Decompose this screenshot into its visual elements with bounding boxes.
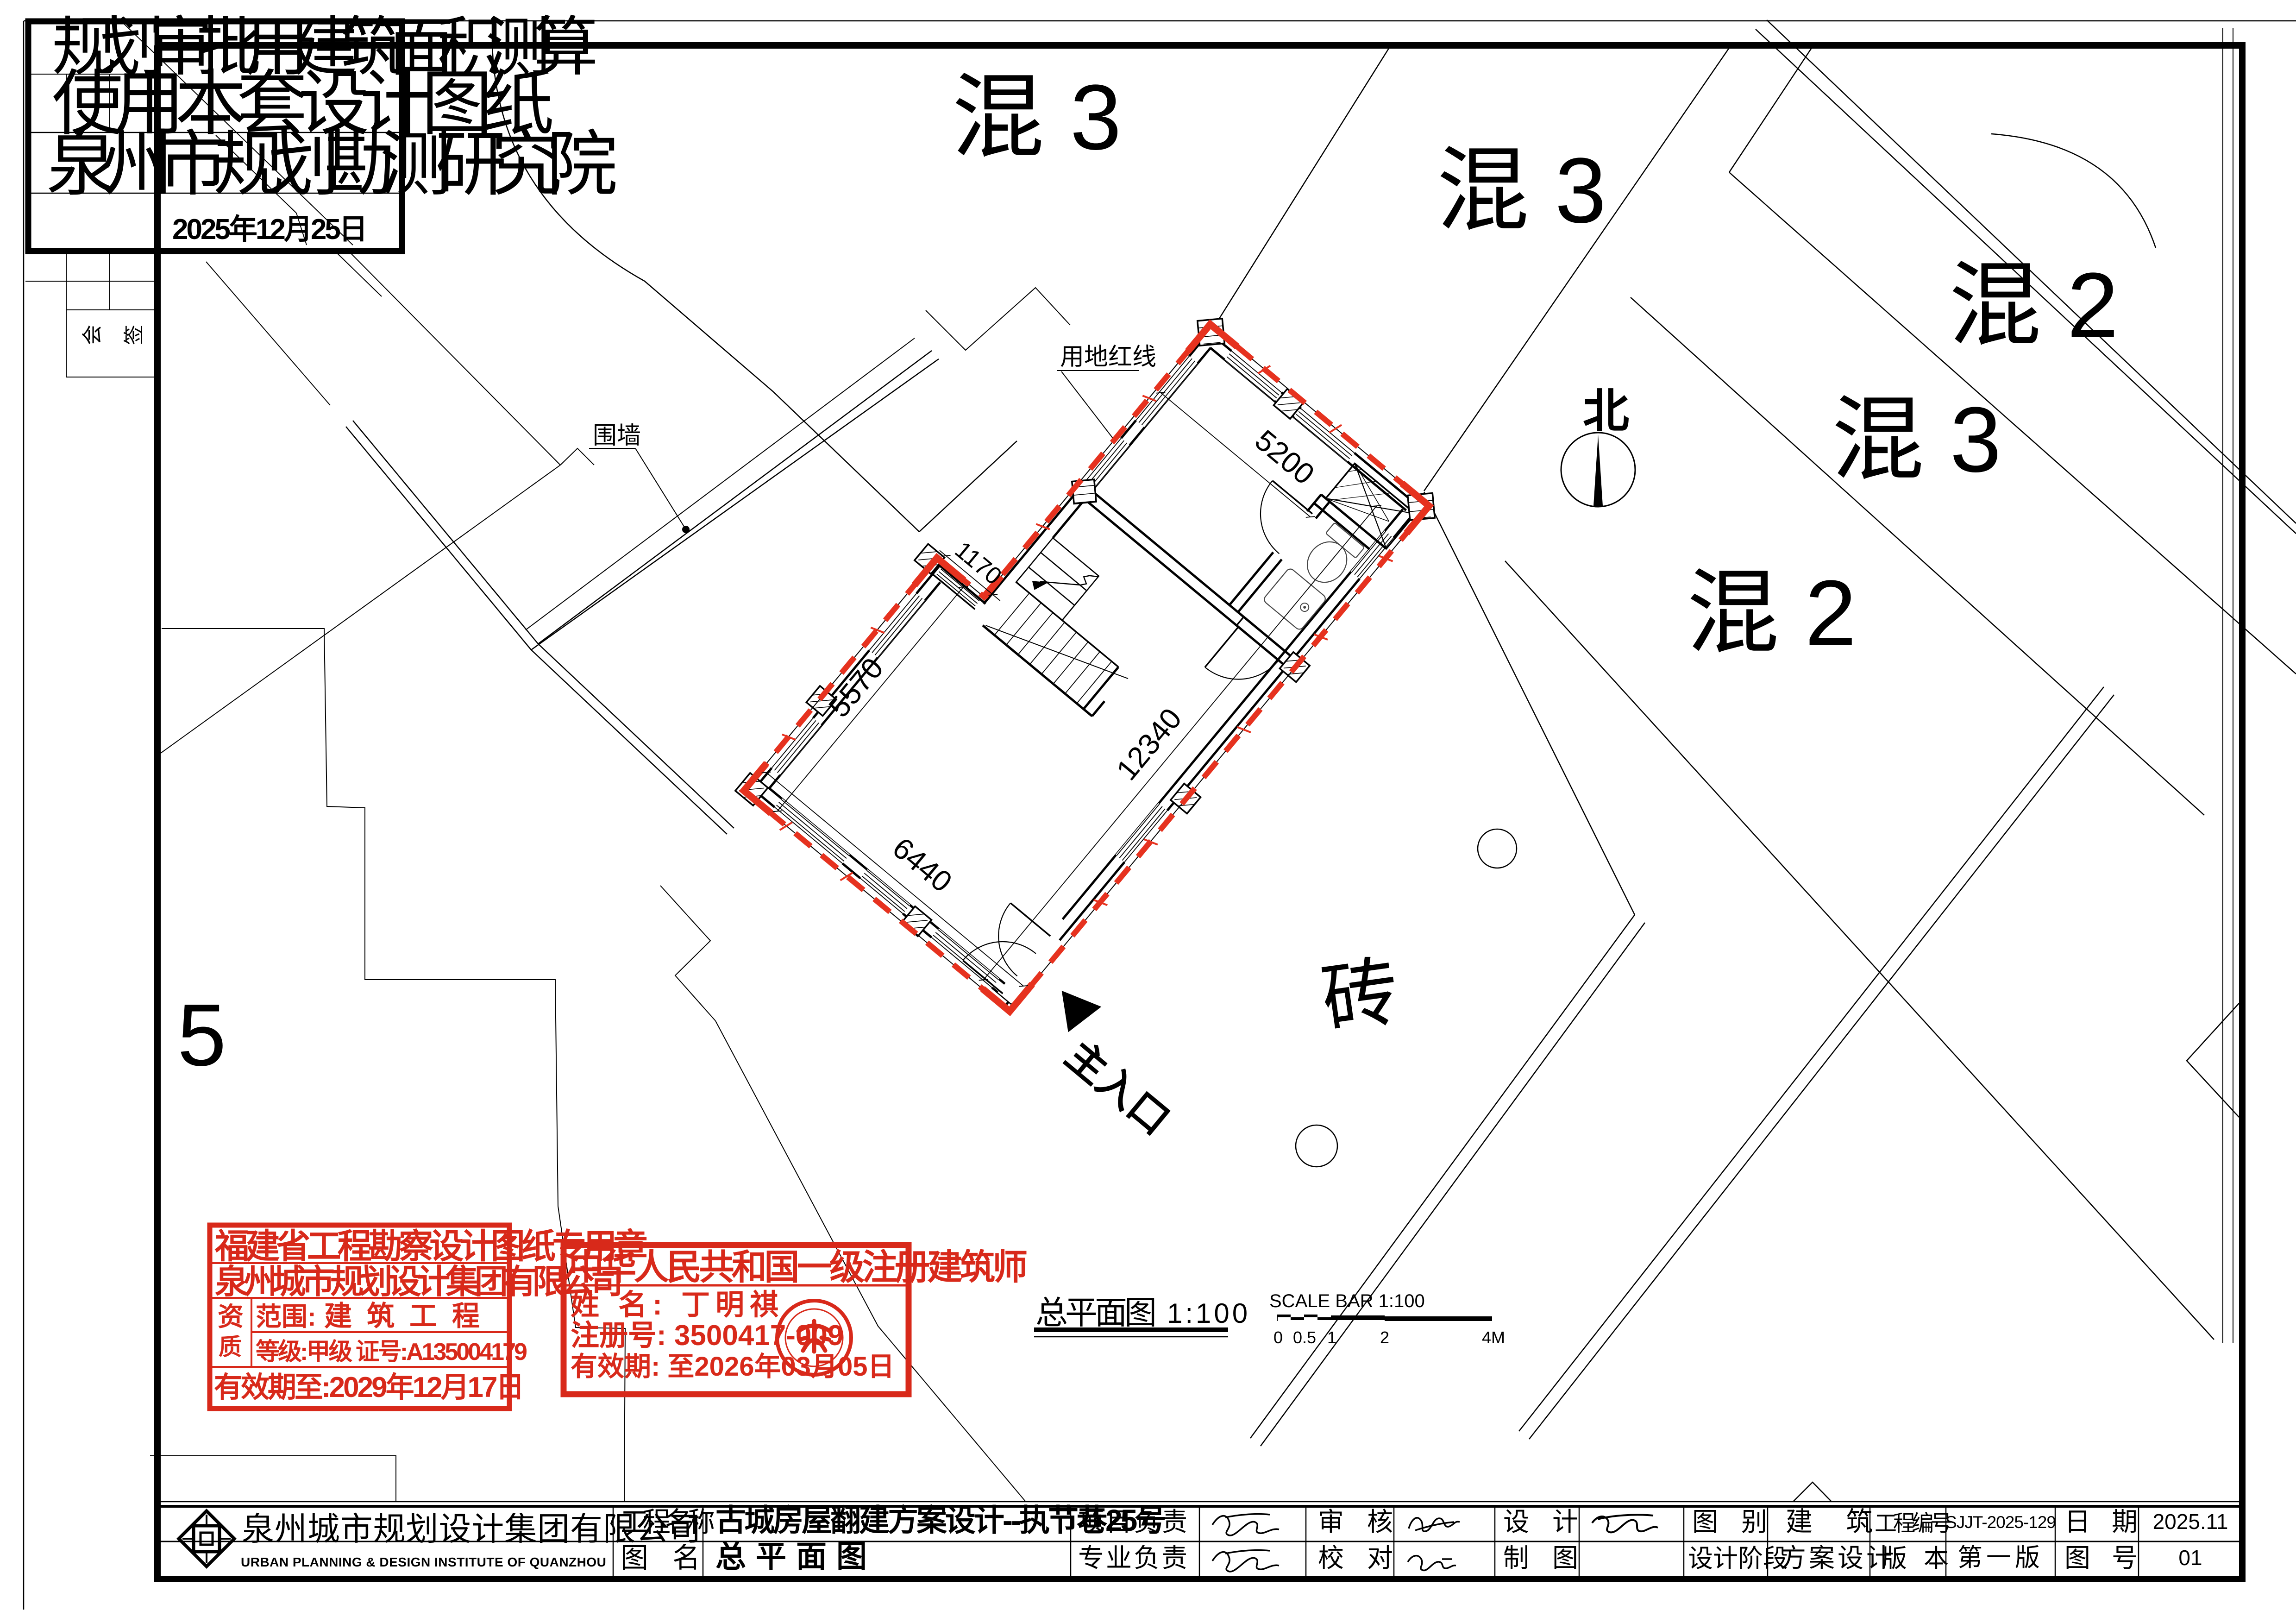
svg-text:图号: 图号 xyxy=(2064,1543,2159,1573)
svg-text:泉州城市规划设计集团有限公司: 泉州城市规划设计集团有限公司 xyxy=(215,1264,621,1301)
svg-text:等级:甲级 证号:A135004179: 等级:甲级 证号:A135004179 xyxy=(256,1339,527,1365)
svg-text:0.5: 0.5 xyxy=(1293,1328,1316,1347)
svg-text:第一版: 第一版 xyxy=(1957,1544,2044,1572)
svg-text:混 2: 混 2 xyxy=(1687,561,1857,665)
svg-text:混 3: 混 3 xyxy=(952,66,1122,169)
svg-text:2025年12月25日: 2025年12月25日 xyxy=(172,214,366,245)
svg-text:混 2: 混 2 xyxy=(1949,254,2119,357)
svg-text:图名: 图名 xyxy=(621,1542,724,1573)
svg-text:泉州市规划勘测研究院: 泉州市规划勘测研究院 xyxy=(46,125,615,204)
svg-text:签: 签 xyxy=(123,325,145,345)
svg-text:版本: 版本 xyxy=(1882,1545,1965,1573)
svg-text:工程编号: 工程编号 xyxy=(1875,1511,1951,1536)
svg-text:方案设计: 方案设计 xyxy=(1780,1543,1895,1573)
svg-text:5: 5 xyxy=(177,986,226,1084)
svg-text:设计: 设计 xyxy=(1503,1507,1601,1536)
svg-text:总平面图: 总平面图 xyxy=(715,1539,877,1573)
svg-text:专业负责: 专业负责 xyxy=(1078,1543,1189,1573)
svg-text:围墙: 围墙 xyxy=(593,422,641,449)
svg-text:中华人民共和国一级注册建筑师: 中华人民共和国一级注册建筑师 xyxy=(569,1248,1027,1287)
svg-text:总平面图: 总平面图 xyxy=(1035,1295,1154,1331)
svg-text:设计阶段: 设计阶段 xyxy=(1688,1545,1788,1573)
svg-text:2025.11: 2025.11 xyxy=(2153,1510,2228,1534)
svg-text:校对: 校对 xyxy=(1318,1543,1416,1573)
svg-text:用地红线: 用地红线 xyxy=(1060,344,1156,371)
svg-text:姓 名: 丁明祺: 姓 名: 丁明祺 xyxy=(571,1289,784,1321)
svg-text:0: 0 xyxy=(1273,1328,1283,1347)
svg-text:注册号: 3500417-009: 注册号: 3500417-009 xyxy=(571,1320,843,1352)
svg-text:会: 会 xyxy=(81,325,104,345)
svg-text:北: 北 xyxy=(1583,385,1629,437)
svg-text:工程名称: 工程名称 xyxy=(621,1507,714,1538)
svg-text:混 3: 混 3 xyxy=(1832,388,2001,491)
svg-text:SCALE BAR 1:100: SCALE BAR 1:100 xyxy=(1269,1291,1425,1311)
svg-text:1: 1 xyxy=(1327,1328,1336,1347)
svg-text:制图: 制图 xyxy=(1503,1543,1601,1573)
svg-text:资: 资 xyxy=(218,1302,244,1331)
svg-text:SJJT-2025-129: SJJT-2025-129 xyxy=(1945,1513,2056,1532)
svg-text:建筑工程: 建筑工程 xyxy=(324,1301,495,1332)
svg-text:砖: 砖 xyxy=(1317,948,1404,1043)
svg-text:项目负责: 项目负责 xyxy=(1078,1507,1189,1536)
svg-text:4M: 4M xyxy=(1482,1328,1505,1347)
svg-text:混 3: 混 3 xyxy=(1437,139,1606,242)
svg-text:范围:: 范围: xyxy=(256,1302,316,1331)
svg-text:图别: 图别 xyxy=(1692,1507,1790,1536)
svg-text:有效期至:2029年12月17日: 有效期至:2029年12月17日 xyxy=(214,1371,523,1403)
svg-text:审核: 审核 xyxy=(1318,1507,1416,1536)
svg-text:URBAN PLANNING & DESIGN INSTIT: URBAN PLANNING & DESIGN INSTITUTE OF QUA… xyxy=(241,1555,606,1569)
svg-text:质: 质 xyxy=(219,1334,242,1360)
svg-text:2: 2 xyxy=(1380,1328,1389,1347)
svg-text:日期: 日期 xyxy=(2064,1507,2159,1536)
svg-text:1:100: 1:100 xyxy=(1167,1298,1250,1329)
svg-text:01: 01 xyxy=(2178,1546,2202,1570)
